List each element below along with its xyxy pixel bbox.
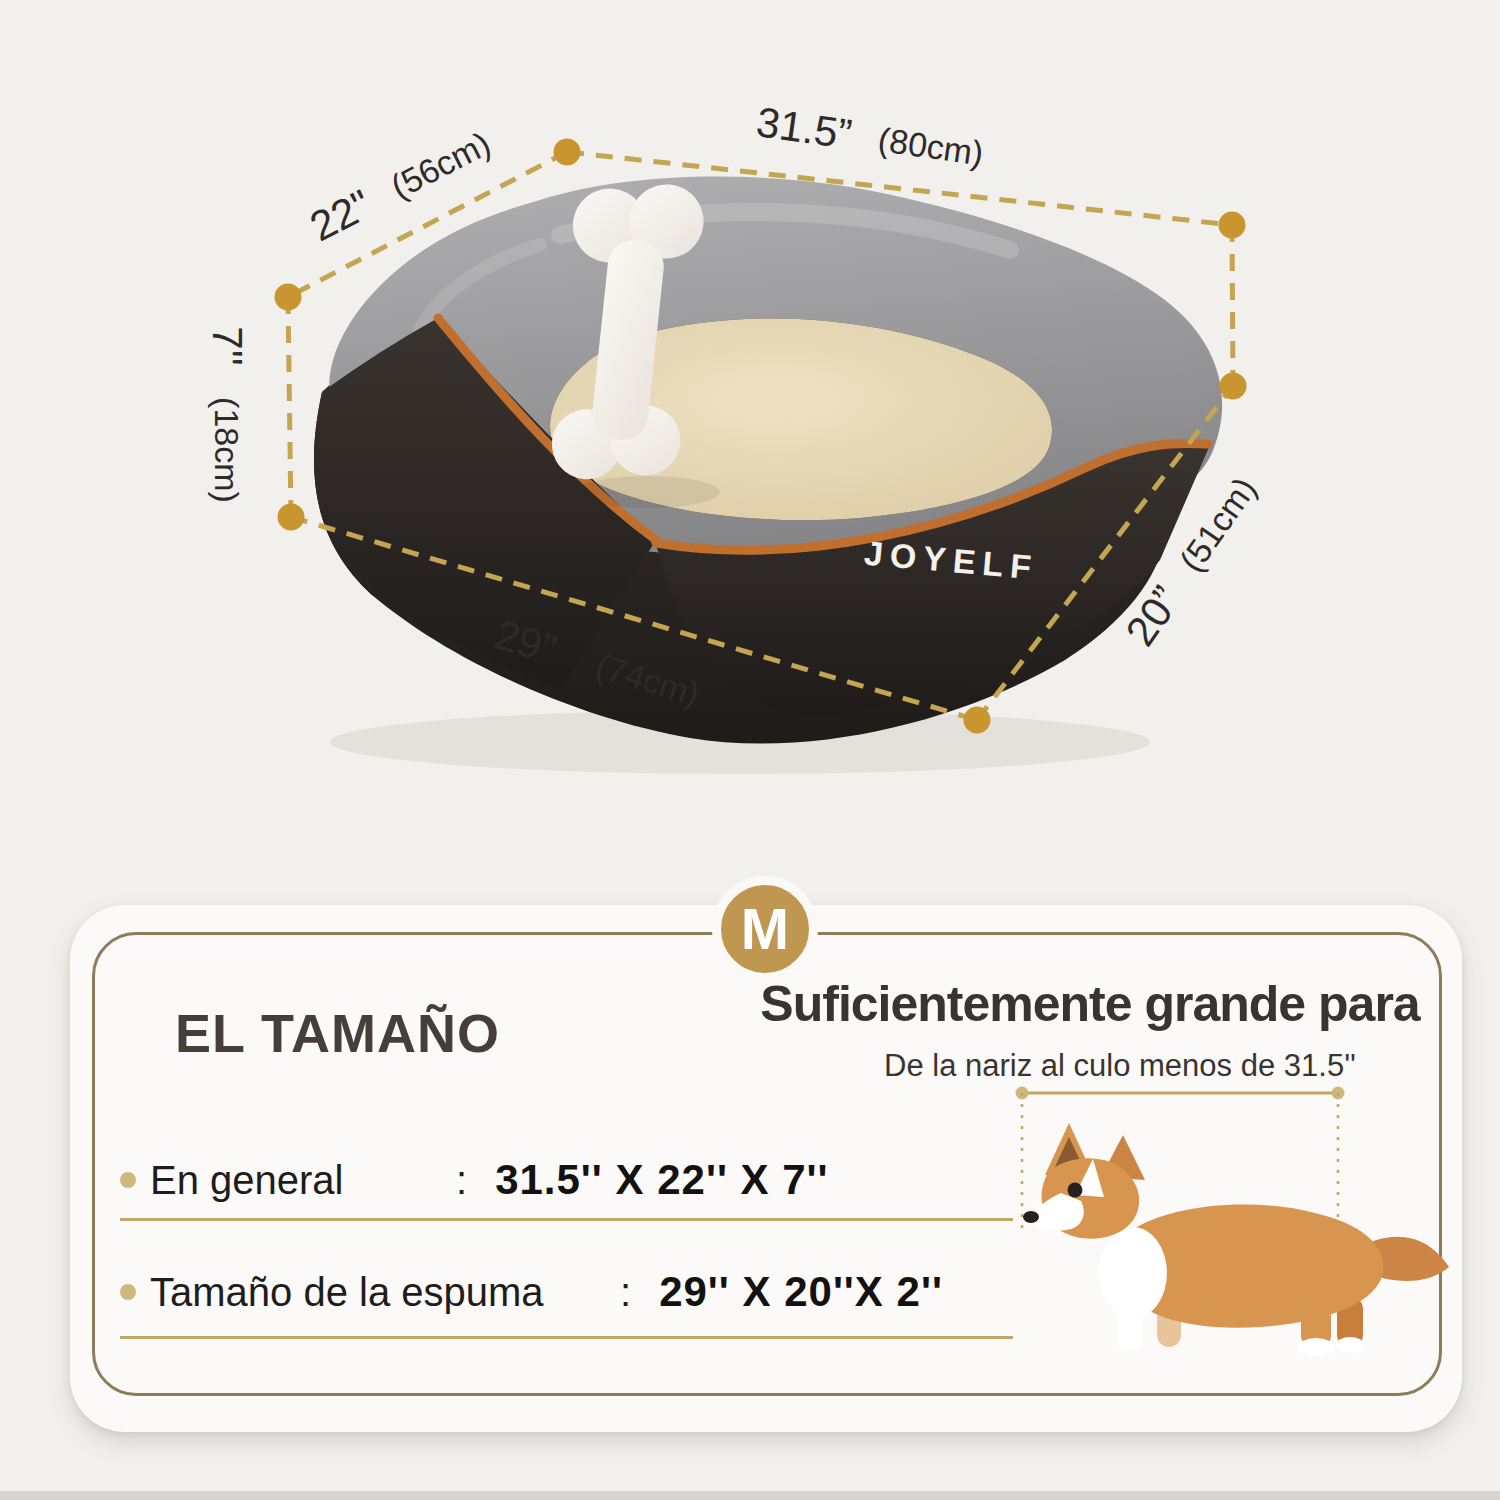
dimension-dot [278,504,305,531]
dimension-dot [554,139,581,166]
bullet-icon [120,1172,136,1188]
svg-text:(18cm): (18cm) [208,397,246,503]
dimension-dot [275,284,302,311]
corgi-leg [1117,1293,1143,1351]
row-underline [120,1218,1013,1221]
size-row-label: En general [150,1158,456,1203]
svg-text:(56cm): (56cm) [385,124,497,206]
panel-title: EL TAMAÑO [175,1002,500,1064]
corgi-eye [1068,1183,1083,1198]
product-infographic: JOYELF [0,0,1500,1500]
size-badge-letter: M [741,900,789,958]
dim-line-right-height [1232,225,1233,386]
size-row-label: Tamaño de la espuma [150,1270,620,1315]
size-row-overall: En general : 31.5'' X 22'' X 7'' [120,1156,829,1204]
dim-line-height [288,297,291,517]
dimension-dot [1220,373,1247,400]
svg-text:31.5”: 31.5” [753,98,854,158]
bone-shadow [576,476,720,508]
bed-dimension-diagram: JOYELF [0,0,1500,870]
bottom-divider [0,1491,1500,1500]
corgi-nose [1023,1211,1039,1223]
size-row-value: 31.5'' X 22'' X 7'' [495,1156,828,1204]
panel-heading: Suficientemente grande para [740,975,1440,1033]
size-row-colon: : [620,1270,631,1315]
size-row-colon: : [456,1158,467,1203]
dim-label-height: 7'' (18cm) [204,326,251,503]
corgi-foot [1336,1337,1364,1353]
corgi-illustration [1023,1123,1449,1356]
corgi-measurement-figure [1005,1075,1455,1375]
dim-label-top-width: 31.5” (80cm) [753,98,986,176]
size-row-value: 29'' X 20''X 2'' [659,1268,943,1316]
bullet-icon [120,1284,136,1300]
size-row-foam: Tamaño de la espuma : 29'' X 20''X 2'' [120,1268,943,1316]
size-badge: M [712,876,818,982]
dimension-dot [964,707,991,734]
row-underline [120,1336,1013,1339]
svg-text:7'': 7'' [204,326,251,365]
svg-text:(80cm): (80cm) [876,120,986,172]
corgi-foot [1298,1338,1334,1356]
dimension-dot [1219,212,1246,239]
svg-text:22": 22" [302,180,378,250]
